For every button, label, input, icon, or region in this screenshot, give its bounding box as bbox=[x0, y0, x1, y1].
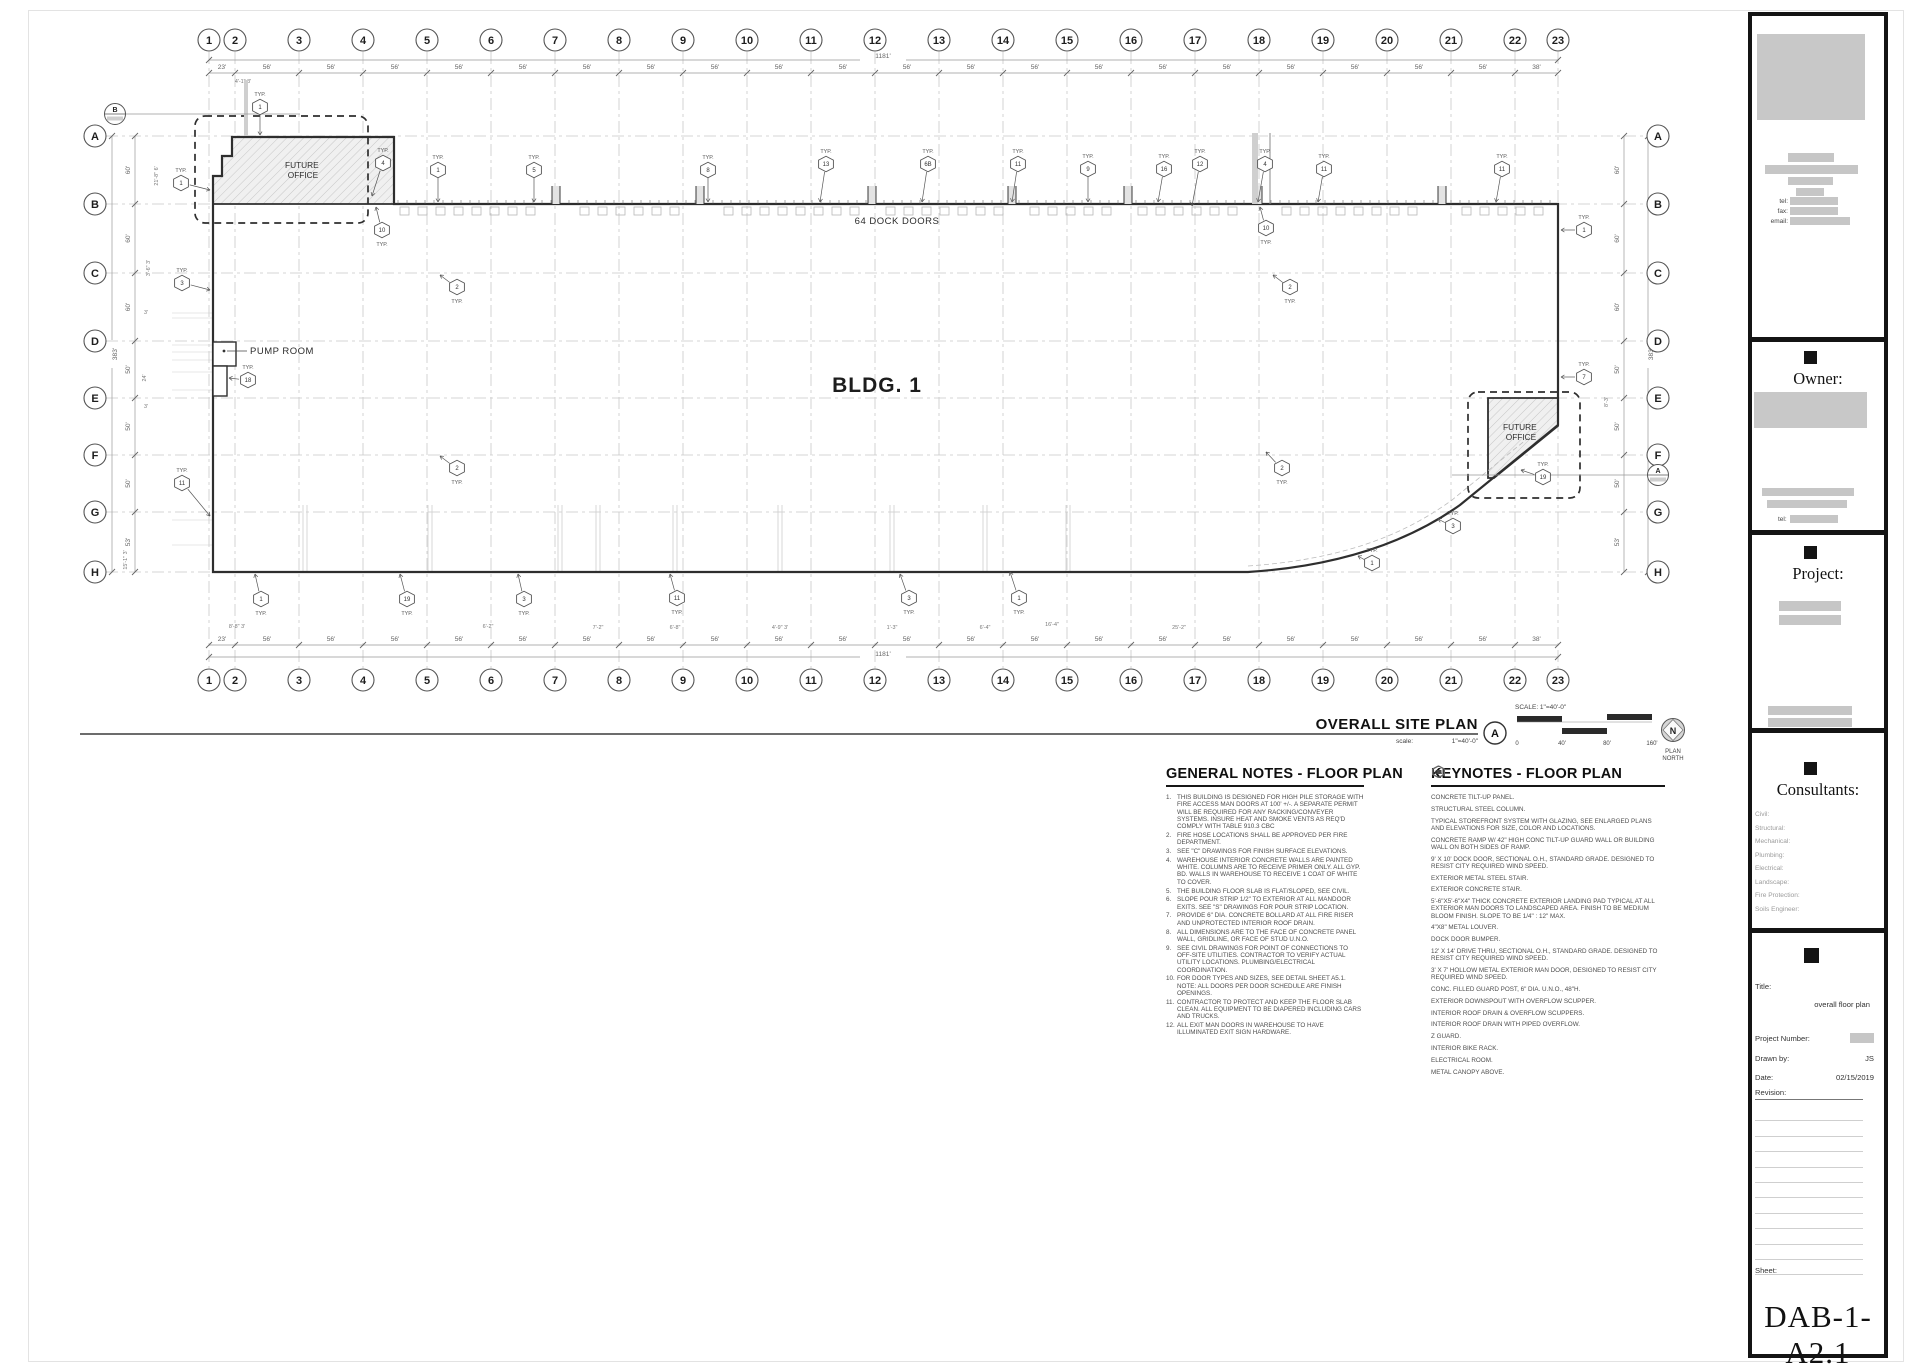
dock-door bbox=[778, 207, 787, 215]
dim-label: 56' bbox=[1479, 636, 1488, 643]
redacted-text bbox=[1779, 615, 1841, 625]
dock-door bbox=[652, 207, 661, 215]
tag-leader bbox=[1158, 177, 1162, 202]
tag-leader bbox=[1496, 177, 1500, 202]
keynote-item: 1012' X 14' DRIVE THRU, SECTIONAL O.H., … bbox=[1431, 948, 1665, 962]
dock-door bbox=[508, 207, 517, 215]
dock-door bbox=[1210, 207, 1219, 215]
note-text: SEE "C" DRAWINGS FOR FINISH SURFACE ELEV… bbox=[1177, 848, 1348, 855]
dim-label: 56' bbox=[775, 64, 784, 71]
dock-door bbox=[1156, 207, 1165, 215]
general-note-item: 5.THE BUILDING FLOOR SLAB IS FLAT/SLOPED… bbox=[1166, 888, 1364, 895]
grid-bubble-label: 20 bbox=[1381, 35, 1393, 47]
dim-label: 56' bbox=[903, 636, 912, 643]
dim-label: 60' bbox=[1614, 303, 1621, 312]
plan-labels: BLDG. 1 64 DOCK DOORS PUMP ROOM FUTURE O… bbox=[223, 160, 1539, 442]
scalebar-tick: 40' bbox=[1558, 741, 1566, 747]
note-text: ALL DIMENSIONS ARE TO THE FACE OF CONCRE… bbox=[1177, 929, 1364, 944]
dim-label: 53' bbox=[125, 538, 132, 547]
future-office-label-2: FUTURE OFFICE bbox=[1503, 422, 1539, 442]
grid-bubble-label: 2 bbox=[232, 675, 238, 687]
typ-label: TYP. bbox=[518, 611, 529, 617]
dim-label: 56' bbox=[1095, 636, 1104, 643]
grid-bubble-label: 19 bbox=[1317, 35, 1329, 47]
small-dim-label: 8'-3' bbox=[1604, 397, 1610, 407]
keynote-text: Z GUARD. bbox=[1431, 1033, 1461, 1040]
note-number: 8. bbox=[1166, 929, 1177, 944]
tag-leader bbox=[922, 172, 927, 202]
dim-label: 50' bbox=[125, 365, 132, 374]
tag-arrowhead bbox=[229, 376, 233, 378]
section-divider bbox=[1752, 337, 1884, 342]
dock-door bbox=[1030, 207, 1039, 215]
keynotes-list: 1CONCRETE TILT-UP PANEL.2STRUCTURAL STEE… bbox=[1431, 794, 1665, 1076]
consultants-heading: Consultants: bbox=[1752, 780, 1884, 800]
typ-label: TYP. bbox=[1012, 149, 1023, 155]
typ-label: TYP. bbox=[1013, 610, 1024, 616]
dock-door bbox=[1462, 207, 1471, 215]
grid-bubble-label: 3 bbox=[296, 35, 302, 47]
keynote-item: 59' X 10' DOCK DOOR, SECTIONAL O.H., STA… bbox=[1431, 856, 1665, 870]
grid-bubble-label: G bbox=[91, 507, 100, 519]
graphic-scale-bar: SCALE: 1"=40'-0" 0 40' 80' 160' bbox=[1515, 704, 1658, 747]
typ-label: TYP. bbox=[376, 242, 387, 248]
dim-label: 60' bbox=[125, 234, 132, 243]
tag-leader bbox=[1010, 572, 1016, 590]
grid-bubble-label: 13 bbox=[933, 675, 945, 687]
keynote-item: 17INTERIOR BIKE RACK. bbox=[1431, 1045, 1665, 1052]
keynote-text: 12' X 14' DRIVE THRU, SECTIONAL O.H., ST… bbox=[1431, 948, 1665, 962]
small-dim-label: 16'-4" bbox=[1045, 622, 1059, 628]
keynote-item: 113' X 7' HOLLOW METAL EXTERIOR MAN DOOR… bbox=[1431, 967, 1665, 981]
tag-arrowhead bbox=[206, 290, 210, 291]
redacted-text bbox=[1788, 177, 1833, 185]
dock-door bbox=[1228, 207, 1237, 215]
redacted-text bbox=[1768, 718, 1852, 727]
fax-label: fax: bbox=[1778, 208, 1788, 215]
small-dim-label: 1'-3" bbox=[887, 625, 898, 631]
typ-label: TYP. bbox=[903, 610, 914, 616]
grid-bubble-label: H bbox=[1654, 567, 1662, 579]
keynote-item: 12CONC. FILLED GUARD POST, 6" DIA. U.N.O… bbox=[1431, 986, 1665, 993]
dim-label: 56' bbox=[647, 636, 656, 643]
dim-label: 23' bbox=[218, 64, 227, 71]
keynote-item: 19METAL CANOPY ABOVE. bbox=[1431, 1069, 1665, 1076]
typ-label: TYP. bbox=[1447, 511, 1458, 517]
tel-label: tel: bbox=[1779, 198, 1788, 205]
revision-line bbox=[1755, 1214, 1863, 1229]
door-jamb bbox=[1124, 186, 1132, 204]
keynotes-panel: KEYNOTES - FLOOR PLAN 1CONCRETE TILT-UP … bbox=[1431, 766, 1665, 1080]
keynotes-title: KEYNOTES - FLOOR PLAN bbox=[1431, 766, 1665, 787]
note-number: 6. bbox=[1166, 896, 1177, 911]
keynote-item: 9DOCK DOOR BUMPER. bbox=[1431, 936, 1665, 943]
grid-bubble-label: 2 bbox=[232, 35, 238, 47]
keynote-text: 4"X8" METAL LOUVER. bbox=[1431, 924, 1498, 931]
dock-door bbox=[1408, 207, 1417, 215]
dock-door bbox=[1516, 207, 1525, 215]
title-value: overall floor plan bbox=[1814, 1000, 1870, 1009]
keynote-item: 3TYPICAL STOREFRONT SYSTEM WITH GLAZING,… bbox=[1431, 818, 1665, 832]
project-bullet bbox=[1804, 546, 1817, 559]
dim-label: 56' bbox=[1479, 64, 1488, 71]
scale-value: 1"=40'-0" bbox=[1452, 738, 1479, 745]
typ-label: TYP. bbox=[1578, 362, 1589, 368]
owner-redacted bbox=[1754, 392, 1867, 428]
grid-bubble-label: D bbox=[91, 336, 99, 348]
dock-door bbox=[850, 207, 859, 215]
ref-marker-letter: A bbox=[1655, 468, 1660, 475]
dim-label: 56' bbox=[839, 636, 848, 643]
grid-bubble-label: 15 bbox=[1061, 675, 1073, 687]
small-dim-label: 7'-2" bbox=[593, 625, 604, 631]
dock-door bbox=[742, 207, 751, 215]
general-note-item: 12.ALL EXIT MAN DOORS IN WAREHOUSE TO HA… bbox=[1166, 1022, 1364, 1037]
dock-door bbox=[994, 207, 1003, 215]
keynote-text: CONC. FILLED GUARD POST, 6" DIA. U.N.O.,… bbox=[1431, 986, 1580, 993]
keynote-item: 84"X8" METAL LOUVER. bbox=[1431, 924, 1665, 931]
dock-door bbox=[598, 207, 607, 215]
typ-label: TYP. bbox=[1578, 215, 1589, 221]
pump-room bbox=[213, 342, 236, 366]
dock-door bbox=[1084, 207, 1093, 215]
redacted-fax bbox=[1790, 207, 1838, 215]
keynote-item: 14INTERIOR ROOF DRAIN & OVERFLOW SCUPPER… bbox=[1431, 1010, 1665, 1017]
dock-door bbox=[1498, 207, 1507, 215]
keynote-text: EXTERIOR CONCRETE STAIR. bbox=[1431, 886, 1522, 893]
keynote-hex-number: 10 bbox=[1263, 226, 1270, 232]
keynote-item: 6BEXTERIOR CONCRETE STAIR. bbox=[1431, 886, 1665, 893]
note-text: THIS BUILDING IS DESIGNED FOR HIGH PILE … bbox=[1177, 794, 1364, 830]
typ-label: TYP. bbox=[176, 468, 187, 474]
dim-label: 56' bbox=[839, 64, 848, 71]
general-note-item: 11.CONTRACTOR TO PROTECT AND KEEP THE FL… bbox=[1166, 999, 1364, 1021]
svg-text:N: N bbox=[1670, 726, 1677, 736]
grid-bubble-label: 10 bbox=[741, 675, 753, 687]
dim-label: 56' bbox=[903, 64, 912, 71]
redacted-text bbox=[1762, 488, 1854, 496]
dock-door bbox=[1192, 207, 1201, 215]
pump-room-annex bbox=[213, 366, 227, 396]
tag-arrowhead bbox=[818, 198, 820, 202]
drawn-by-value: JS bbox=[1865, 1054, 1874, 1063]
keynote-hex-number: 11 bbox=[1499, 167, 1506, 173]
consultant-label: Civil: bbox=[1755, 808, 1800, 822]
keynote-text: 5'-6"X5'-6"X4" THICK CONCRETE EXTERIOR L… bbox=[1431, 898, 1665, 920]
door-jamb bbox=[1438, 186, 1446, 204]
general-notes-title: GENERAL NOTES - FLOOR PLAN bbox=[1166, 766, 1364, 787]
dim-label: 56' bbox=[263, 636, 272, 643]
general-note-item: 4.WAREHOUSE INTERIOR CONCRETE WALLS ARE … bbox=[1166, 857, 1364, 886]
overall-dim-label: 1181' bbox=[875, 53, 890, 60]
dim-label: 56' bbox=[519, 636, 528, 643]
grid-bubble-label: 11 bbox=[805, 35, 817, 47]
keynote-hex-number: 13 bbox=[823, 162, 830, 168]
grid-bubbles: 1122334455667788991010111112121313141415… bbox=[84, 29, 1669, 691]
keynote-text: INTERIOR ROOF DRAIN WITH PIPED OVERFLOW. bbox=[1431, 1021, 1580, 1028]
general-note-item: 6.SLOPE POUR STRIP 1/2" TO EXTERIOR AT A… bbox=[1166, 896, 1364, 911]
dock-door bbox=[832, 207, 841, 215]
general-note-item: 7.PROVIDE 6" DIA. CONCRETE BOLLARD AT AL… bbox=[1166, 912, 1364, 927]
dim-label: 56' bbox=[711, 636, 720, 643]
general-notes-list: 1.THIS BUILDING IS DESIGNED FOR HIGH PIL… bbox=[1166, 794, 1364, 1037]
dock-door bbox=[1354, 207, 1363, 215]
typ-label: TYP. bbox=[1082, 154, 1093, 160]
dim-label: 56' bbox=[1415, 636, 1424, 643]
dim-label: 56' bbox=[1351, 64, 1360, 71]
redacted-text bbox=[1779, 601, 1841, 611]
consultant-label: Landscape: bbox=[1755, 876, 1800, 890]
dock-door bbox=[580, 207, 589, 215]
dock-door bbox=[1282, 207, 1291, 215]
date-value: 02/15/2019 bbox=[1836, 1073, 1874, 1082]
dock-door bbox=[904, 207, 913, 215]
grid-bubble-label: 16 bbox=[1125, 35, 1137, 47]
note-text: SLOPE POUR STRIP 1/2" TO EXTERIOR AT ALL… bbox=[1177, 896, 1364, 911]
grid-bubble-label: F bbox=[92, 450, 99, 462]
typ-label: TYP. bbox=[1259, 149, 1270, 155]
small-dim-label: 21'-8" 6' bbox=[154, 166, 160, 185]
dim-label: 38' bbox=[1532, 64, 1541, 71]
keynote-text: STRUCTURAL STEEL COLUMN. bbox=[1431, 806, 1525, 813]
dim-label: 56' bbox=[711, 64, 720, 71]
grid-bubble-label: 1 bbox=[206, 675, 212, 687]
drawn-by-label: Drawn by: bbox=[1755, 1054, 1789, 1063]
door-jamb bbox=[552, 186, 560, 204]
dim-label: 50' bbox=[1614, 479, 1621, 488]
redacted-email bbox=[1790, 217, 1850, 225]
consultant-label: Electrical: bbox=[1755, 862, 1800, 876]
typ-label: TYP. bbox=[176, 268, 187, 274]
small-dim-label: 8'-8" 3' bbox=[229, 624, 245, 630]
dim-label: 56' bbox=[647, 64, 656, 71]
keynote-hex-number: 10 bbox=[379, 228, 386, 234]
keynote-item: 1CONCRETE TILT-UP PANEL. bbox=[1431, 794, 1665, 801]
dim-label: 56' bbox=[519, 64, 528, 71]
overall-dim-label: 383' bbox=[112, 348, 119, 360]
grid-bubble-label: 14 bbox=[997, 675, 1010, 687]
door-jamb bbox=[696, 186, 704, 204]
tag-arrowhead bbox=[1157, 198, 1158, 202]
note-number: 2. bbox=[1166, 832, 1177, 847]
dock-door bbox=[1174, 207, 1183, 215]
title-label: Title: bbox=[1755, 982, 1771, 991]
keynote-item: 15INTERIOR ROOF DRAIN WITH PIPED OVERFLO… bbox=[1431, 1021, 1665, 1028]
grid-bubble-label: 3 bbox=[296, 675, 302, 687]
small-dim-label: 4'-9" 3' bbox=[772, 625, 788, 631]
keynote-text: EXTERIOR METAL STEEL STAIR. bbox=[1431, 875, 1528, 882]
tag-arrowhead bbox=[254, 574, 255, 578]
note-number: 10. bbox=[1166, 975, 1177, 997]
revision-line bbox=[1755, 1106, 1863, 1121]
scalebar-tick: 80' bbox=[1603, 741, 1611, 747]
dim-label: 50' bbox=[125, 479, 132, 488]
typ-label: TYP. bbox=[1158, 154, 1169, 160]
dock-door bbox=[976, 207, 985, 215]
dim-label: 60' bbox=[125, 303, 132, 312]
grid-bubble-label: 23 bbox=[1552, 675, 1564, 687]
general-note-item: 1.THIS BUILDING IS DESIGNED FOR HIGH PIL… bbox=[1166, 794, 1364, 830]
note-text: ALL EXIT MAN DOORS IN WAREHOUSE TO HAVE … bbox=[1177, 1022, 1364, 1037]
keynote-text: 9' X 10' DOCK DOOR, SECTIONAL O.H., STAN… bbox=[1431, 856, 1665, 870]
dock-door bbox=[472, 207, 481, 215]
floor-plan-drawing: 23'56'56'56'56'56'56'56'56'56'56'56'56'5… bbox=[0, 0, 1745, 780]
tag-leader bbox=[820, 172, 825, 202]
general-note-item: 3.SEE "C" DRAWINGS FOR FINISH SURFACE EL… bbox=[1166, 848, 1364, 855]
keynote-text: EXTERIOR DOWNSPOUT WITH OVERFLOW SCUPPER… bbox=[1431, 998, 1596, 1005]
title-block: tel: fax: email: Owner: tel: Project: Co… bbox=[1748, 12, 1888, 1358]
dim-label: 56' bbox=[327, 636, 336, 643]
svg-text:PLAN: PLAN bbox=[1665, 749, 1681, 755]
architect-logo-redacted bbox=[1757, 34, 1865, 120]
general-note-item: 8.ALL DIMENSIONS ARE TO THE FACE OF CONC… bbox=[1166, 929, 1364, 944]
redacted-text bbox=[1768, 706, 1852, 715]
tag-arrowhead bbox=[399, 574, 400, 578]
pump-room-label: PUMP ROOM bbox=[250, 346, 314, 357]
dim-label: 56' bbox=[775, 636, 784, 643]
typ-label: TYP. bbox=[922, 149, 933, 155]
scalebar-seg bbox=[1562, 728, 1607, 734]
grid-bubble-label: 21 bbox=[1445, 35, 1457, 47]
redacted-text bbox=[1767, 500, 1847, 508]
dim-label: 56' bbox=[1415, 64, 1424, 71]
svg-text:19: 19 bbox=[1435, 770, 1441, 776]
small-dim-label: 25'-2" bbox=[1172, 625, 1186, 631]
note-number: 3. bbox=[1166, 848, 1177, 855]
dim-label: 56' bbox=[967, 636, 976, 643]
tag-arrowhead bbox=[375, 207, 376, 211]
scalebar-seg bbox=[1607, 714, 1652, 720]
grid-bubble-label: 10 bbox=[741, 35, 753, 47]
keynote-hex-number: 11 bbox=[1321, 167, 1328, 173]
grid-bubble-label: C bbox=[1654, 268, 1662, 280]
small-dim-label: 6'-8" bbox=[670, 625, 681, 631]
general-notes-panel: GENERAL NOTES - FLOOR PLAN 1.THIS BUILDI… bbox=[1166, 766, 1364, 1038]
svg-text:NORTH: NORTH bbox=[1662, 756, 1683, 762]
keynote-hex-number: 12 bbox=[1197, 162, 1204, 168]
dim-label: 56' bbox=[1159, 64, 1168, 71]
date-label: Date: bbox=[1755, 1073, 1773, 1082]
section-divider bbox=[1752, 530, 1884, 535]
ref-marker-redacted bbox=[1650, 478, 1666, 482]
revision-line bbox=[1755, 1137, 1863, 1152]
typ-label: TYP. bbox=[1260, 240, 1271, 246]
grid-bubble-label: C bbox=[91, 268, 99, 280]
drawing-sheet: 23'56'56'56'56'56'56'56'56'56'56'56'56'5… bbox=[0, 0, 1920, 1371]
dock-door bbox=[1318, 207, 1327, 215]
note-text: FIRE HOSE LOCATIONS SHALL BE APPROVED PE… bbox=[1177, 832, 1364, 847]
north-arrow-icon: N PLAN NORTH bbox=[1662, 719, 1685, 763]
grid-bubble-label: E bbox=[91, 393, 98, 405]
sheet-label: Sheet: bbox=[1755, 1266, 1777, 1275]
typ-label: TYP. bbox=[377, 148, 388, 154]
scale-label: scale: bbox=[1396, 738, 1413, 745]
scalebar-seg bbox=[1517, 716, 1562, 722]
general-note-item: 2.FIRE HOSE LOCATIONS SHALL BE APPROVED … bbox=[1166, 832, 1364, 847]
grid-bubble-label: B bbox=[1654, 199, 1662, 211]
dim-label: 56' bbox=[1287, 64, 1296, 71]
keynote-text: TYPICAL STOREFRONT SYSTEM WITH GLAZING, … bbox=[1431, 818, 1665, 832]
redacted-text bbox=[1796, 188, 1824, 196]
note-number: 1. bbox=[1166, 794, 1177, 830]
keynote-text: INTERIOR ROOF DRAIN & OVERFLOW SCUPPERS. bbox=[1431, 1010, 1584, 1017]
dim-label: 56' bbox=[1287, 636, 1296, 643]
grid-bubble-label: D bbox=[1654, 336, 1662, 348]
general-note-item: 10.FOR DOOR TYPES AND SIZES, SEE DETAIL … bbox=[1166, 975, 1364, 997]
door-jamb bbox=[868, 186, 876, 204]
grid-bubble-label: G bbox=[1654, 507, 1663, 519]
dim-label: 50' bbox=[125, 422, 132, 431]
grid-bubble-label: E bbox=[1654, 393, 1661, 405]
typ-label: TYP. bbox=[401, 611, 412, 617]
small-dim-label: 6'-4" bbox=[980, 625, 991, 631]
keynote-hex-number: 11 bbox=[674, 596, 681, 602]
keynote-text: 3' X 7' HOLLOW METAL EXTERIOR MAN DOOR, … bbox=[1431, 967, 1665, 981]
note-number: 7. bbox=[1166, 912, 1177, 927]
note-number: 5. bbox=[1166, 888, 1177, 895]
dim-label: 56' bbox=[455, 64, 464, 71]
typ-label: TYP. bbox=[671, 610, 682, 616]
typ-label: TYP. bbox=[254, 92, 265, 98]
dock-door bbox=[958, 207, 967, 215]
tag-arrowhead bbox=[1521, 469, 1525, 470]
grid-bubble-label: 7 bbox=[552, 675, 558, 687]
grid-bubble-label: 18 bbox=[1253, 35, 1265, 47]
typ-label: TYP. bbox=[242, 365, 253, 371]
dim-label: 56' bbox=[1159, 636, 1168, 643]
overall-dim-label: 1181' bbox=[875, 651, 890, 658]
consultant-label: Soils Engineer: bbox=[1755, 903, 1800, 917]
dock-door bbox=[418, 207, 427, 215]
keynote-item: 75'-6"X5'-6"X4" THICK CONCRETE EXTERIOR … bbox=[1431, 898, 1665, 920]
tag-leader bbox=[255, 574, 259, 591]
revision-line bbox=[1755, 1229, 1863, 1244]
grid-bubble-label: 6 bbox=[488, 675, 494, 687]
typ-label: TYP. bbox=[451, 480, 462, 486]
dock-door bbox=[634, 207, 643, 215]
ref-marker-redacted bbox=[107, 117, 123, 121]
consultants-bullet bbox=[1804, 762, 1817, 775]
dim-label: 38' bbox=[1532, 636, 1541, 643]
tag-arrowhead bbox=[206, 190, 210, 191]
redacted-tel bbox=[1790, 515, 1838, 523]
grid-bubble-label: 23 bbox=[1552, 35, 1564, 47]
grid-bubble-label: 4 bbox=[360, 675, 367, 687]
dim-label: 56' bbox=[1031, 636, 1040, 643]
redacted-text bbox=[1788, 153, 1834, 162]
small-dim-label: 15'-1" 3' bbox=[123, 550, 129, 569]
tag-arrowhead bbox=[669, 574, 670, 578]
grid-bubble-label: 20 bbox=[1381, 675, 1393, 687]
dock-door bbox=[1048, 207, 1057, 215]
owner-heading: Owner: bbox=[1752, 369, 1884, 389]
grid-bubble-label: 22 bbox=[1509, 35, 1521, 47]
tag-leader bbox=[518, 574, 522, 591]
note-number: 12. bbox=[1166, 1022, 1177, 1037]
dock-door bbox=[1480, 207, 1489, 215]
small-dim-label: 3' bbox=[144, 404, 148, 410]
typ-label: TYP. bbox=[255, 611, 266, 617]
dim-label: 60' bbox=[1614, 234, 1621, 243]
redacted-tel bbox=[1790, 197, 1838, 205]
grid-bubble-label: 5 bbox=[424, 675, 430, 687]
future-office-label: FUTURE OFFICE bbox=[285, 160, 321, 180]
note-text: FOR DOOR TYPES AND SIZES, SEE DETAIL SHE… bbox=[1177, 975, 1364, 997]
typ-label: TYP. bbox=[1537, 462, 1548, 468]
dock-door bbox=[940, 207, 949, 215]
building-outline-path bbox=[213, 137, 1558, 572]
revision-line bbox=[1755, 1168, 1863, 1183]
